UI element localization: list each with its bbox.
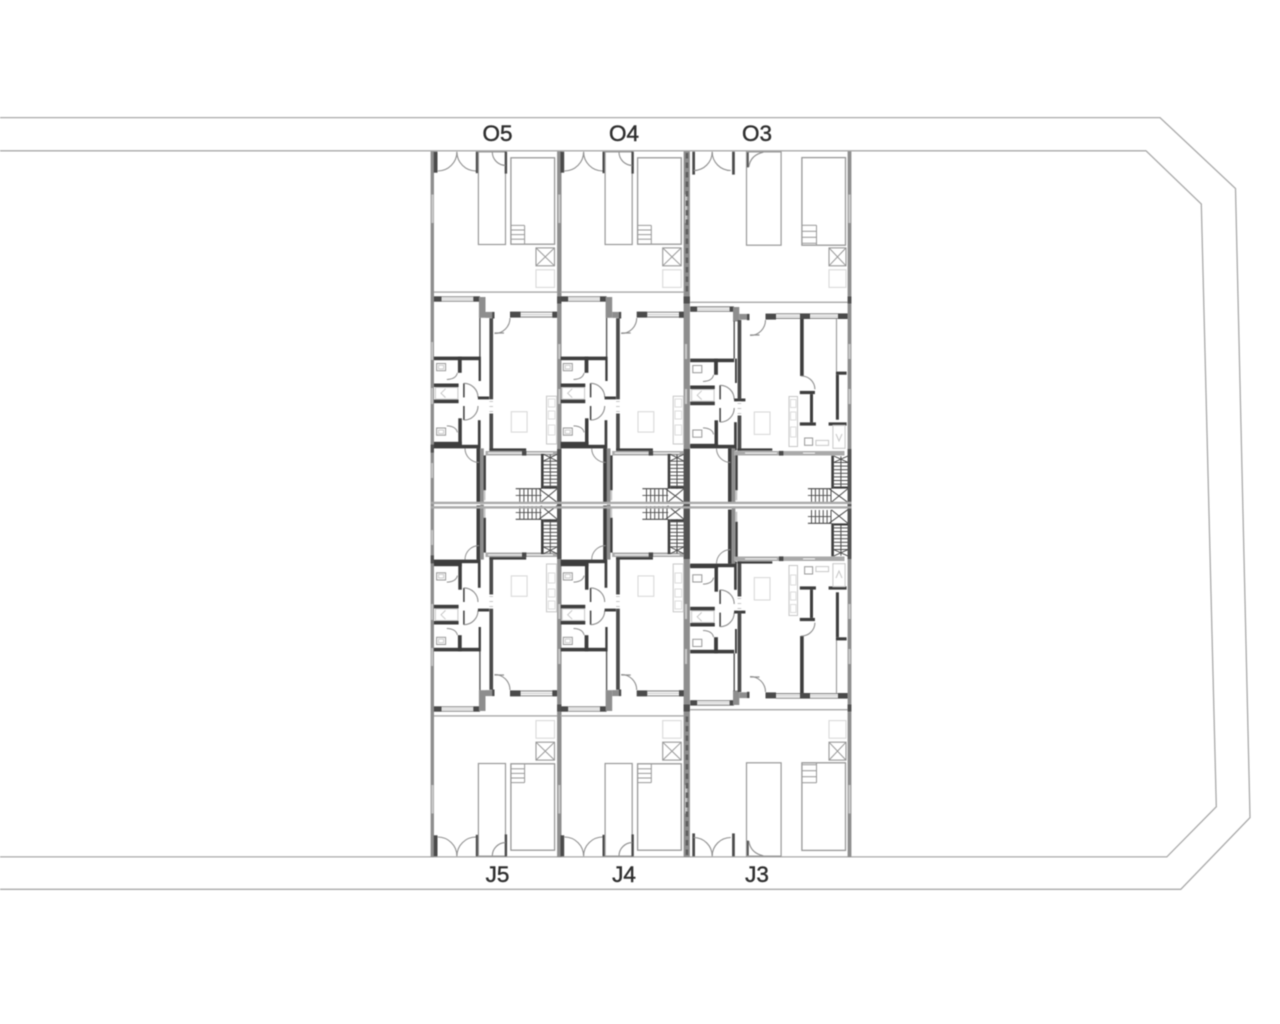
svg-text:O5: O5 xyxy=(482,121,512,146)
svg-text:J5: J5 xyxy=(486,862,510,887)
svg-text:O4: O4 xyxy=(609,121,639,146)
svg-text:J3: J3 xyxy=(745,862,769,887)
svg-text:J4: J4 xyxy=(612,862,636,887)
svg-text:O3: O3 xyxy=(742,121,772,146)
